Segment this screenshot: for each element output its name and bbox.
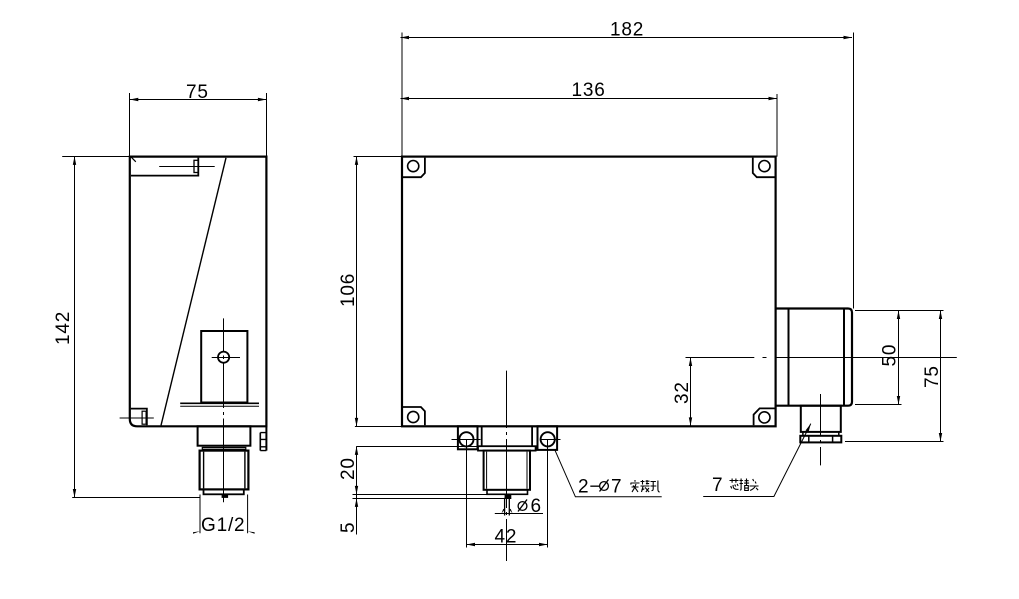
svg-text:136: 136 bbox=[572, 80, 606, 101]
svg-text:5: 5 bbox=[338, 522, 359, 533]
svg-text:32: 32 bbox=[672, 381, 693, 404]
svg-text:50: 50 bbox=[880, 344, 901, 367]
svg-text:75: 75 bbox=[186, 82, 209, 103]
svg-text:142: 142 bbox=[53, 311, 74, 345]
svg-text:6: 6 bbox=[531, 496, 542, 517]
svg-text:42: 42 bbox=[495, 527, 518, 548]
svg-text:G1/2: G1/2 bbox=[201, 515, 245, 536]
svg-text:75: 75 bbox=[922, 365, 943, 388]
svg-text:7: 7 bbox=[712, 475, 723, 496]
svg-text:106: 106 bbox=[338, 273, 359, 307]
svg-text:182: 182 bbox=[610, 20, 644, 41]
svg-text:7: 7 bbox=[611, 477, 622, 498]
svg-text:2−: 2− bbox=[578, 477, 601, 498]
svg-text:20: 20 bbox=[338, 457, 359, 480]
